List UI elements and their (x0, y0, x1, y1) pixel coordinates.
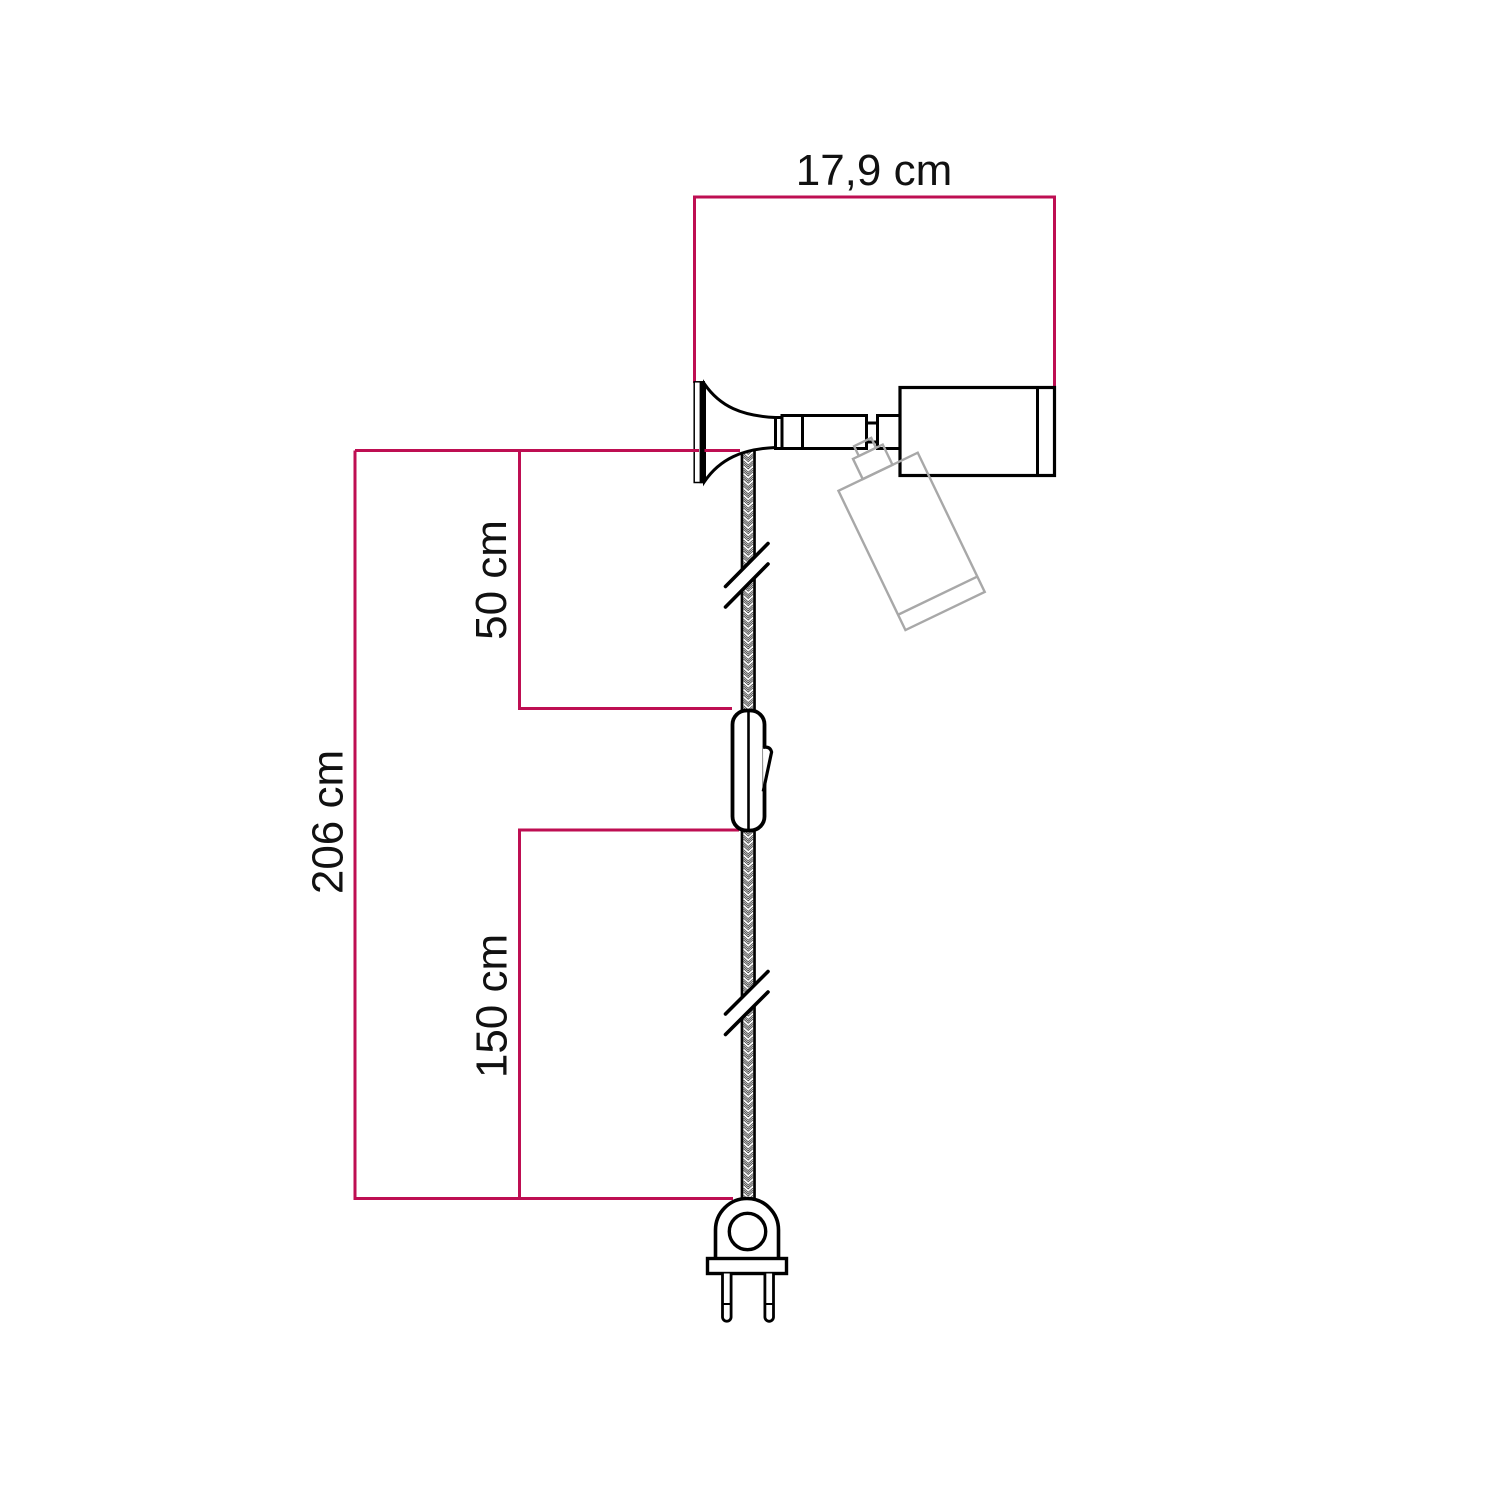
svg-text:150 cm: 150 cm (468, 934, 517, 1078)
svg-text:206 cm: 206 cm (304, 750, 353, 894)
svg-text:17,9 cm: 17,9 cm (796, 146, 953, 195)
svg-text:50 cm: 50 cm (467, 520, 516, 640)
